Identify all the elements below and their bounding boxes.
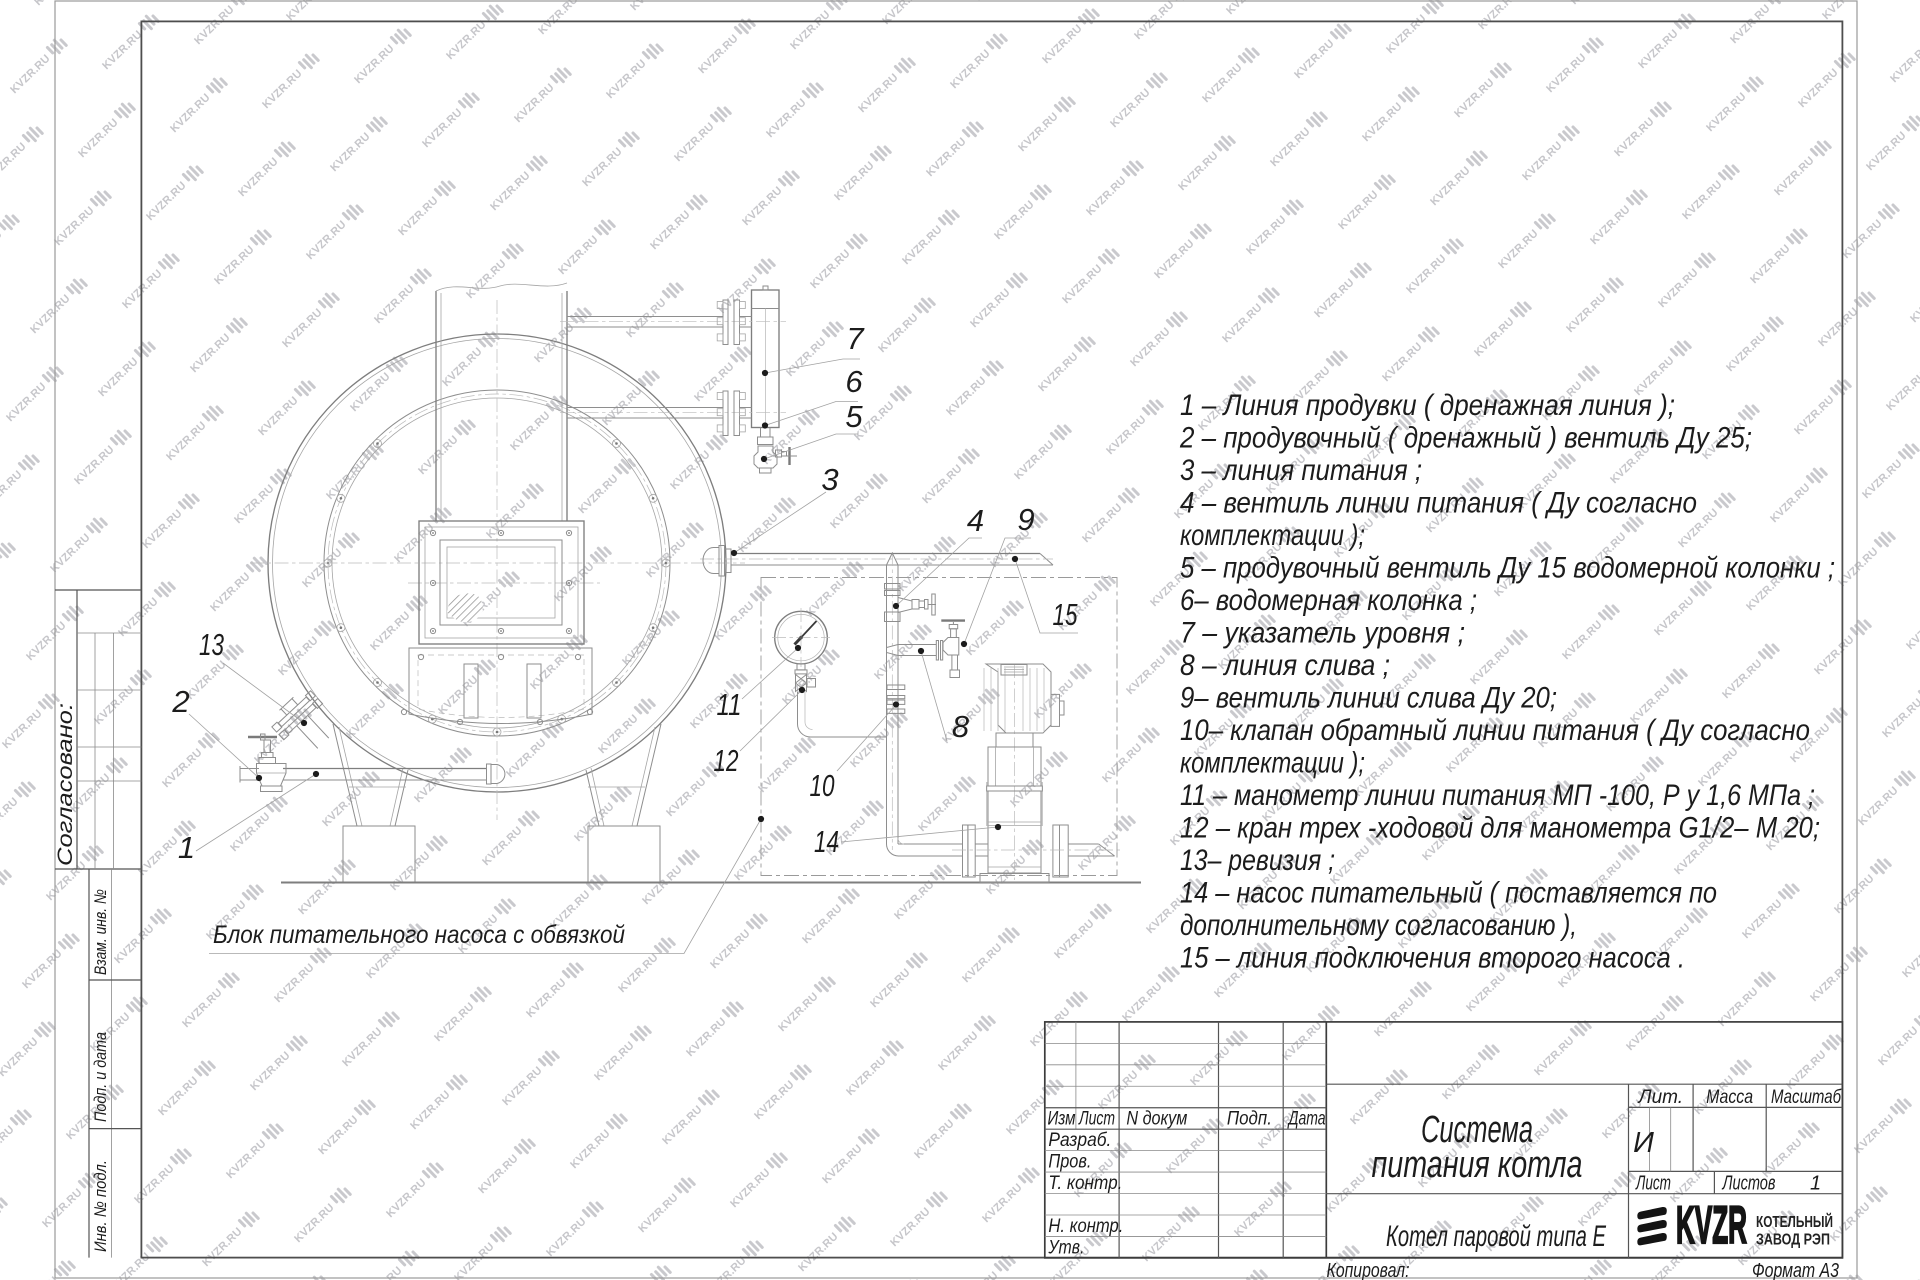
- svg-text:2: 2: [171, 684, 189, 719]
- svg-text:5: 5: [845, 399, 863, 434]
- svg-text:15 – линия подключения втор: 15 – линия подключения второго насоса .: [1180, 942, 1685, 975]
- svg-text:Лист: Лист: [1078, 1109, 1115, 1130]
- svg-text:7 – указатель уровня ;: 7 – указатель уровня ;: [1180, 617, 1465, 650]
- svg-text:Листов: Листов: [1721, 1173, 1775, 1195]
- svg-text:11 – манометр линии питания: 11 – манометр линии питания МП -100, Р у…: [1180, 779, 1815, 812]
- svg-text:Лит.: Лит.: [1637, 1087, 1684, 1108]
- svg-text:КОТЕЛЬНЫЙ: КОТЕЛЬНЫЙ: [1756, 1213, 1833, 1231]
- svg-text:N докум: N докум: [1126, 1109, 1187, 1130]
- svg-text:13– ревизия ;: 13– ревизия ;: [1180, 844, 1335, 877]
- svg-text:12 – кран трех -ходовой для: 12 – кран трех -ходовой для манометра G1…: [1180, 812, 1820, 845]
- svg-text:1: 1: [178, 830, 195, 865]
- svg-text:10– клапан обратный линии: 10– клапан обратный линии питания ( Ду с…: [1180, 714, 1810, 747]
- svg-text:Масса: Масса: [1706, 1087, 1753, 1108]
- svg-text:1: 1: [1810, 1173, 1821, 1195]
- svg-text:5 – продувочный вентиль Ду: 5 – продувочный вентиль Ду 15 водомерной…: [1180, 552, 1835, 585]
- svg-text:3 – линия питания ;: 3 – линия питания ;: [1180, 454, 1422, 487]
- svg-text:6– водомерная колонка ;: 6– водомерная колонка ;: [1180, 584, 1477, 617]
- svg-text:4 – вентиль линии питания: 4 – вентиль линии питания ( Ду согласно: [1180, 487, 1697, 520]
- svg-text:Согласовано:: Согласовано:: [54, 703, 77, 866]
- svg-text:Блок питательного насоса с обв: Блок питательного насоса с обвязкой: [213, 921, 625, 949]
- svg-text:8 – линия слива ;: 8 – линия слива ;: [1180, 649, 1390, 682]
- svg-text:4: 4: [967, 503, 984, 538]
- svg-text:Копировал:: Копировал:: [1327, 1260, 1410, 1280]
- svg-text:Инв. № подл.: Инв. № подл.: [91, 1160, 110, 1252]
- svg-text:Лист: Лист: [1635, 1173, 1671, 1195]
- svg-text:15: 15: [1053, 597, 1079, 632]
- svg-text:Взам. инв. №: Взам. инв. №: [91, 889, 110, 975]
- svg-text:14: 14: [814, 824, 839, 859]
- svg-text:Котел паровой типа Е: Котел паровой типа Е: [1386, 1220, 1607, 1253]
- svg-text:Масштаб: Масштаб: [1771, 1087, 1842, 1108]
- svg-text:8: 8: [952, 709, 970, 744]
- svg-text:дополнительному согласованию: дополнительному согласованию ),: [1180, 909, 1577, 942]
- svg-text:KVZR: KVZR: [1676, 1196, 1747, 1255]
- svg-text:И: И: [1633, 1127, 1654, 1159]
- svg-text:12: 12: [714, 743, 739, 778]
- svg-text:комплектации );: комплектации );: [1180, 519, 1365, 552]
- svg-text:9– вентиль линии слива Ду: 9– вентиль линии слива Ду 20;: [1180, 682, 1557, 715]
- svg-text:14 – насос питательный ( по: 14 – насос питательный ( поставляется по: [1180, 877, 1717, 910]
- svg-text:Подп. и дата: Подп. и дата: [91, 1032, 110, 1122]
- svg-text:Разраб.: Разраб.: [1048, 1130, 1111, 1151]
- svg-text:Утв.: Утв.: [1048, 1237, 1085, 1258]
- svg-text:Подп.: Подп.: [1227, 1109, 1272, 1130]
- svg-text:Дата: Дата: [1287, 1109, 1325, 1130]
- svg-text:10: 10: [810, 768, 835, 803]
- svg-text:ЗАВОД РЭП: ЗАВОД РЭП: [1756, 1232, 1830, 1249]
- svg-text:11: 11: [717, 687, 742, 722]
- svg-text:Формат А3: Формат А3: [1752, 1260, 1839, 1280]
- svg-text:2 – продувочный ( дренажный: 2 – продувочный ( дренажный ) вентиль Ду…: [1179, 422, 1752, 455]
- svg-text:3: 3: [821, 462, 838, 497]
- svg-text:Т. контр.: Т. контр.: [1048, 1173, 1122, 1194]
- svg-text:6: 6: [845, 364, 863, 399]
- svg-text:7: 7: [846, 321, 865, 356]
- svg-text:комплектации );: комплектации );: [1180, 747, 1365, 780]
- svg-text:1 – Линия продувки ( дренажн: 1 – Линия продувки ( дренажная линия );: [1180, 389, 1675, 422]
- svg-text:Н. контр.: Н. контр.: [1048, 1216, 1123, 1237]
- svg-text:Пров.: Пров.: [1048, 1152, 1091, 1173]
- svg-text:9: 9: [1017, 502, 1034, 537]
- svg-text:Изм: Изм: [1048, 1109, 1076, 1130]
- svg-text:питания котла: питания котла: [1372, 1144, 1583, 1186]
- svg-text:13: 13: [199, 627, 224, 662]
